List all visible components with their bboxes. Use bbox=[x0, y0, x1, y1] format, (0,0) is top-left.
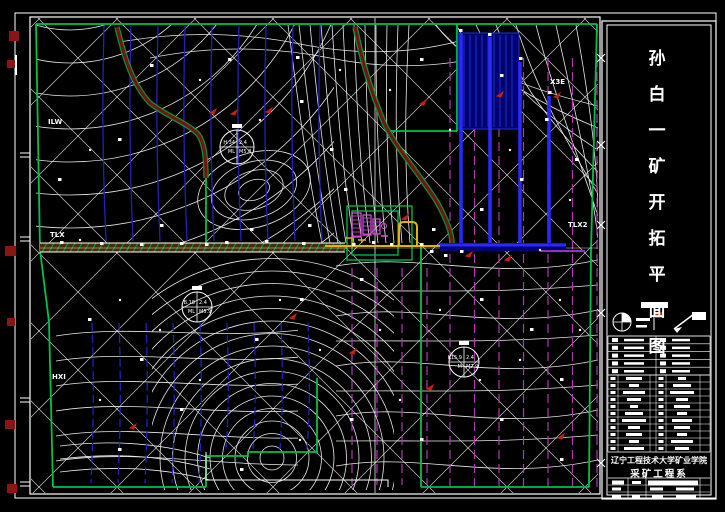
mine-development-plan-drawing: H.342.4MLM5.8B.182.4MLM5.9K15.92.4MM7.9 bbox=[0, 0, 725, 512]
borehole-value: M7.9 bbox=[466, 364, 478, 370]
borehole-value: H.34 bbox=[223, 140, 235, 146]
borehole-value: M5.8 bbox=[239, 149, 251, 155]
borehole-value: ML bbox=[228, 149, 235, 155]
borehole-value: ML bbox=[188, 309, 195, 315]
borehole-value: 2.4 bbox=[466, 355, 474, 361]
borehole-value: B.18 bbox=[184, 300, 195, 306]
borehole-value: M bbox=[458, 364, 462, 370]
borehole-value: M5.9 bbox=[199, 309, 211, 315]
borehole-value: 2.4 bbox=[199, 300, 207, 306]
borehole-value: 2.4 bbox=[239, 140, 247, 146]
cad-sheet: H.342.4MLM5.8B.182.4MLM5.9K15.92.4MM7.9 … bbox=[0, 0, 725, 512]
sheet-background bbox=[0, 0, 725, 512]
borehole-value: K15.9 bbox=[448, 355, 462, 361]
